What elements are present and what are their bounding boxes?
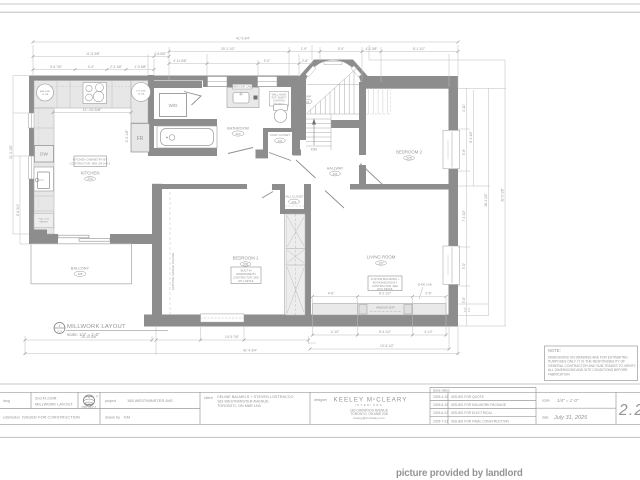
svg-text:WINDOW SEAT: WINDOW SEAT [376, 306, 395, 310]
svg-text:5'-0": 5'-0" [462, 263, 466, 269]
svg-text:BEDROOM 1: BEDROOM 1 [233, 256, 259, 261]
svg-text:CONTRACTOR. SEE: CONTRACTOR. SEE [233, 276, 259, 280]
svg-text:BATHROOM: BATHROOM [227, 127, 249, 131]
svg-text:EXISTING SLOPED CEILING: EXISTING SLOPED CEILING [171, 253, 175, 290]
svg-text:204: 204 [87, 177, 93, 181]
svg-text:CUSTOM MILLWORK +: CUSTOM MILLWORK + [371, 277, 400, 281]
svg-text:8'-1 1/2": 8'-1 1/2" [413, 47, 426, 51]
svg-text:201: 201 [305, 100, 310, 104]
svg-text:1'-9": 1'-9" [301, 47, 308, 51]
svg-text:INTERIORS: INTERIORS [355, 403, 384, 407]
svg-text:picture provided by landlord: picture provided by landlord [396, 468, 523, 479]
svg-text:2nd FLOOR: 2nd FLOOR [35, 396, 57, 401]
svg-text:4'-6": 4'-6" [328, 292, 335, 296]
svg-text:2'-8": 2'-8" [302, 59, 309, 63]
svg-text:designer: designer [314, 398, 328, 402]
svg-text:8'-2 1/2": 8'-2 1/2" [469, 131, 473, 143]
svg-text:MEDICINE CAB.: MEDICINE CAB. [232, 85, 252, 89]
svg-text:2.2: 2.2 [618, 402, 640, 419]
svg-text:3'-6": 3'-6" [462, 297, 466, 303]
svg-text:project: project [105, 399, 116, 403]
svg-text:18 DIA: 18 DIA [138, 93, 145, 96]
svg-text:STAIR: STAIR [303, 95, 311, 99]
svg-text:W/D: W/D [169, 103, 178, 108]
svg-text:5'-9": 5'-9" [338, 47, 345, 51]
svg-text:4'-4": 4'-4" [88, 65, 95, 69]
svg-text:202: 202 [278, 139, 283, 143]
svg-text:4/5.0 DETAIL: 4/5.0 DETAIL [377, 287, 393, 291]
svg-text:5'-8": 5'-8" [462, 149, 466, 155]
svg-text:207: 207 [378, 261, 384, 265]
svg-text:KEELEY McCLEARY: KEELEY McCLEARY [334, 396, 408, 403]
svg-text:13'-8 1/2": 13'-8 1/2" [380, 344, 395, 348]
svg-text:11'-5 3/8": 11'-5 3/8" [86, 52, 100, 56]
svg-text:HALLWAY: HALLWAY [327, 167, 344, 171]
svg-text:2'-3 1/8": 2'-3 1/8" [110, 65, 123, 69]
svg-text:8'-2 1/2": 8'-2 1/2" [379, 292, 392, 296]
svg-text:1'-9 5/8": 1'-9 5/8" [134, 65, 147, 69]
svg-text:CONTRACTOR. SEE: CONTRACTOR. SEE [372, 284, 398, 288]
svg-text:ISSUED FOR QUOTE: ISSUED FOR QUOTE [451, 395, 485, 399]
svg-text:KM: KM [124, 415, 130, 420]
svg-text:41'-9 3/4": 41'-9 3/4" [236, 37, 251, 41]
svg-text:NOTE:: NOTE: [548, 348, 561, 353]
svg-text:205: 205 [406, 156, 412, 160]
svg-text:scale: 1/4" = 1'-0": scale: 1/4" = 1'-0" [67, 332, 100, 337]
svg-text:31'-0 1/8": 31'-0 1/8" [501, 188, 505, 201]
svg-text:COAT CLOSET: COAT CLOSET [270, 133, 290, 137]
svg-text:submission: submission [3, 416, 20, 420]
svg-text:client: client [204, 396, 213, 400]
svg-text:BEDROOM 2: BEDROOM 2 [396, 150, 422, 155]
svg-text:FABRICATION: FABRICATION [548, 372, 570, 376]
svg-text:11'-10 5/8": 11'-10 5/8" [83, 107, 102, 112]
svg-text:206: 206 [243, 262, 249, 266]
svg-text:183 WESTMINSTER AVENUE: 183 WESTMINSTER AVENUE [217, 400, 269, 404]
svg-text:BUILT-IN: BUILT-IN [241, 268, 252, 272]
svg-text:KITCHEN: KITCHEN [81, 171, 100, 176]
svg-text:4'-8 5/8": 4'-8 5/8" [154, 52, 167, 56]
svg-text:ISSUED FOR MILLWORK PACKAGE: ISSUED FOR MILLWORK PACKAGE [451, 403, 507, 407]
svg-text:dwg: dwg [3, 399, 10, 403]
svg-text:203: 203 [235, 132, 240, 136]
svg-text:MILLWORK LAYOUT: MILLWORK LAYOUT [67, 324, 126, 330]
svg-text:4'-11": 4'-11" [462, 104, 466, 112]
svg-text:8'-8 3/4": 8'-8 3/4" [16, 203, 20, 216]
svg-text:1'-0": 1'-0" [467, 307, 471, 312]
svg-text:4'-11 5/8": 4'-11 5/8" [173, 59, 187, 63]
svg-text:WARDROBE BY: WARDROBE BY [236, 272, 256, 276]
svg-text:issue dates: issue dates [433, 388, 450, 392]
svg-text:3'-6 7/8": 3'-6 7/8" [50, 65, 63, 69]
svg-text:ISSUED FOR CONSTRUCTION: ISSUED FOR CONSTRUCTION [22, 415, 80, 420]
svg-text:18'-4 1/2": 18'-4 1/2" [484, 193, 488, 206]
svg-text:41'-4 3/4": 41'-4 3/4" [243, 349, 258, 353]
svg-text:8'-4 1/2": 8'-4 1/2" [379, 330, 392, 334]
svg-text:KIT. SINK: KIT. SINK [136, 91, 146, 93]
svg-text:3/5.1 DETAIL: 3/5.1 DETAIL [238, 279, 254, 283]
svg-text:2025-4-15: 2025-4-15 [433, 395, 448, 399]
svg-text:204: 204 [292, 200, 297, 204]
svg-text:200: 200 [333, 172, 338, 176]
svg-text:MILLWORK LAYOUT: MILLWORK LAYOUT [35, 402, 73, 407]
svg-text:ISSUED FOR ELECTRICAL: ISSUED FOR ELECTRICAL [451, 411, 493, 415]
svg-text:keeley@mccleary.com: keeley@mccleary.com [354, 416, 385, 420]
svg-text:FR: FR [137, 136, 144, 142]
svg-text:scale: scale [542, 399, 550, 403]
svg-text:14'-9 7/8": 14'-9 7/8" [225, 335, 240, 339]
svg-text:4'-10": 4'-10" [331, 330, 340, 334]
svg-text:HALL CLOSET: HALL CLOSET [284, 195, 304, 199]
svg-text:2.2: 2.2 [57, 330, 62, 334]
svg-text:PULL-OUT: PULL-OUT [38, 219, 49, 221]
svg-text:BOOKSHELVES BY: BOOKSHELVES BY [373, 280, 398, 284]
svg-text:PANTRY: PANTRY [39, 221, 48, 224]
svg-text:CELINE BALMELS + STEVEN LOSTRA: CELINE BALMELS + STEVEN LOSTRACCO [217, 395, 294, 399]
svg-text:2025-6-22: 2025-6-22 [433, 411, 448, 415]
svg-text:DW: DW [40, 152, 48, 157]
svg-text:2'-3 1/8": 2'-3 1/8" [125, 129, 129, 143]
svg-text:BALCONY: BALCONY [71, 267, 90, 271]
svg-text:2025-5-15: 2025-5-15 [433, 403, 448, 407]
svg-text:185 WESTMINSTER AVE.: 185 WESTMINSTER AVE. [127, 398, 174, 403]
svg-text:July 31, 2025: July 31, 2025 [553, 415, 588, 421]
svg-text:4'-0 3/8": 4'-0 3/8" [365, 47, 378, 51]
svg-text:PROJECT: PROJECT [82, 405, 97, 409]
svg-text:date: date [542, 415, 549, 419]
svg-text:2'-0": 2'-0" [264, 59, 271, 63]
svg-text:1'-0": 1'-0" [463, 307, 467, 312]
svg-text:ISSUED FOR FINAL CONSTRUCTION: ISSUED FOR FINAL CONSTRUCTION [451, 419, 509, 423]
svg-text:7'-4 1/2": 7'-4 1/2" [462, 210, 466, 222]
svg-text:2025-7-31: 2025-7-31 [433, 419, 448, 423]
svg-text:BAR SINK: BAR SINK [40, 90, 51, 93]
svg-text:2'-6": 2'-6" [425, 292, 432, 296]
svg-text:TORONTO, ON M6R 1N3: TORONTO, ON M6R 1N3 [217, 404, 261, 408]
svg-text:15 DIA: 15 DIA [42, 93, 49, 96]
svg-text:SHOE CAB.: SHOE CAB. [418, 283, 433, 287]
svg-text:CONTRACTOR. SEE 3/4.0+4.1: CONTRACTOR. SEE 3/4.0+4.1 [70, 161, 111, 165]
svg-text:4'-10": 4'-10" [424, 330, 433, 334]
svg-text:LIVING ROOM: LIVING ROOM [367, 255, 396, 260]
svg-text:208: 208 [78, 272, 83, 276]
svg-text:21'-2 1/8": 21'-2 1/8" [9, 144, 13, 159]
svg-text:drawn by: drawn by [105, 416, 120, 420]
svg-text:20'-1 1/2": 20'-1 1/2" [221, 47, 236, 51]
svg-text:DN: DN [311, 147, 317, 152]
svg-text:1/4" = 1'-0": 1/4" = 1'-0" [557, 398, 579, 403]
